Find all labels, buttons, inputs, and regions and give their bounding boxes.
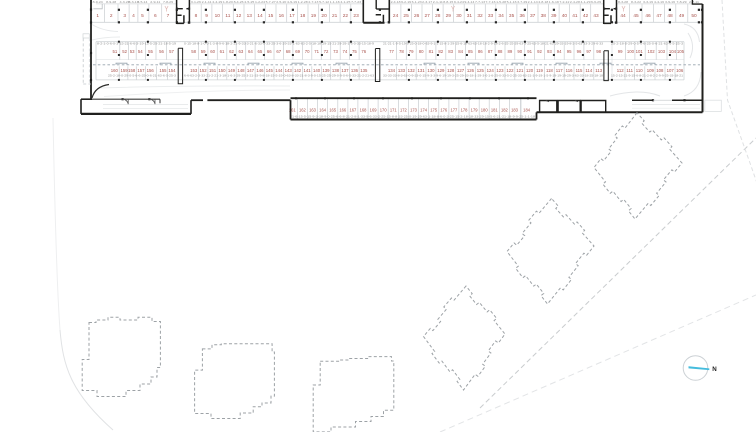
svg-text:84: 84 bbox=[458, 49, 463, 54]
svg-text:41: 41 bbox=[572, 13, 578, 19]
svg-text:46: 46 bbox=[645, 13, 651, 19]
svg-text:2: 2 bbox=[110, 13, 113, 19]
svg-text:147: 147 bbox=[247, 68, 255, 73]
svg-text:64: 64 bbox=[248, 49, 253, 54]
svg-text:165: 165 bbox=[329, 108, 337, 113]
svg-text:29: 29 bbox=[446, 13, 452, 19]
svg-text:2-7-11: 2-7-11 bbox=[689, 1, 700, 4]
svg-text:184: 184 bbox=[523, 108, 531, 113]
svg-text:125: 125 bbox=[477, 68, 485, 73]
svg-text:6-6-29: 6-6-29 bbox=[591, 1, 602, 4]
svg-text:86: 86 bbox=[478, 49, 483, 54]
svg-text:166: 166 bbox=[339, 108, 347, 113]
svg-text:131: 131 bbox=[418, 68, 426, 73]
svg-text:137: 137 bbox=[341, 68, 349, 73]
svg-text:13: 13 bbox=[247, 13, 253, 19]
svg-text:1-5-28: 1-5-28 bbox=[496, 1, 507, 4]
svg-text:58: 58 bbox=[191, 49, 196, 54]
svg-text:21-21-1-9-5-19-9-25-0-18-0-63-: 21-21-1-9-5-19-9-25-0-18-0-63-9-1-1-15-8… bbox=[383, 43, 604, 46]
svg-text:107: 107 bbox=[667, 68, 675, 73]
svg-text:182: 182 bbox=[501, 108, 509, 113]
svg-text:25: 25 bbox=[403, 13, 409, 19]
svg-text:174: 174 bbox=[420, 108, 428, 113]
svg-text:0-15-18-8-1-0-0-1-3-8-9-6-18-2: 0-15-18-8-1-0-0-1-3-8-9-6-18-2-21-9-33-3… bbox=[184, 43, 375, 46]
svg-text:178: 178 bbox=[461, 108, 469, 113]
svg-text:83: 83 bbox=[448, 49, 453, 54]
svg-text:135: 135 bbox=[360, 68, 368, 73]
svg-text:73: 73 bbox=[333, 49, 338, 54]
svg-text:106: 106 bbox=[676, 68, 684, 73]
svg-text:19: 19 bbox=[311, 13, 317, 19]
svg-text:2-9-11: 2-9-11 bbox=[150, 1, 161, 4]
svg-text:158: 158 bbox=[128, 68, 136, 73]
svg-text:82: 82 bbox=[438, 49, 443, 54]
svg-text:79: 79 bbox=[409, 49, 414, 54]
svg-text:2-4-28: 2-4-28 bbox=[570, 1, 581, 4]
svg-text:78: 78 bbox=[399, 49, 404, 54]
svg-text:20: 20 bbox=[321, 13, 327, 19]
svg-text:48: 48 bbox=[667, 13, 673, 19]
svg-text:35: 35 bbox=[509, 13, 515, 19]
svg-text:2-1-14: 2-1-14 bbox=[528, 1, 539, 4]
svg-text:7: 7 bbox=[167, 13, 170, 19]
svg-text:6-2-19: 6-2-19 bbox=[401, 1, 412, 4]
svg-text:8-3-28: 8-3-28 bbox=[618, 1, 629, 4]
svg-text:75: 75 bbox=[352, 49, 357, 54]
svg-text:25-2-18-0-29-0-5-6-6-25-0-6-21: 25-2-18-0-29-0-5-6-6-25-0-6-21-63-6-5-25… bbox=[611, 43, 684, 46]
svg-text:7-8-29: 7-8-29 bbox=[163, 1, 174, 4]
svg-text:90: 90 bbox=[517, 49, 522, 54]
svg-text:68: 68 bbox=[286, 49, 291, 54]
svg-text:101: 101 bbox=[636, 49, 644, 54]
svg-text:149: 149 bbox=[228, 68, 236, 73]
svg-text:2-3-17: 2-3-17 bbox=[422, 1, 433, 4]
svg-text:91: 91 bbox=[527, 49, 532, 54]
svg-text:171: 171 bbox=[390, 108, 398, 113]
svg-text:4-1-25: 4-1-25 bbox=[340, 1, 351, 4]
svg-text:169: 169 bbox=[370, 108, 378, 113]
svg-text:6-1-23: 6-1-23 bbox=[412, 1, 423, 4]
svg-text:143: 143 bbox=[285, 68, 293, 73]
svg-text:164: 164 bbox=[319, 108, 327, 113]
svg-text:33-33-33-8-3-63-0-9-33-0-15-9-: 33-33-33-8-3-63-0-9-33-0-15-9-3-3-9-6-19… bbox=[383, 74, 604, 77]
svg-text:8-9-28: 8-9-28 bbox=[106, 1, 117, 4]
svg-text:157: 157 bbox=[137, 68, 145, 73]
svg-text:113: 113 bbox=[595, 68, 602, 73]
svg-text:121: 121 bbox=[516, 68, 524, 73]
svg-text:92: 92 bbox=[537, 49, 542, 54]
svg-text:69: 69 bbox=[295, 49, 300, 54]
svg-text:160: 160 bbox=[111, 68, 119, 73]
svg-text:80: 80 bbox=[419, 49, 424, 54]
svg-text:167: 167 bbox=[349, 108, 357, 113]
svg-text:172: 172 bbox=[400, 108, 408, 113]
svg-text:129: 129 bbox=[437, 68, 445, 73]
svg-text:88: 88 bbox=[498, 49, 503, 54]
svg-text:99: 99 bbox=[618, 49, 623, 54]
svg-text:175: 175 bbox=[430, 108, 438, 113]
svg-text:183: 183 bbox=[511, 108, 519, 113]
svg-text:53: 53 bbox=[130, 49, 135, 54]
svg-text:104: 104 bbox=[669, 49, 677, 54]
svg-text:111: 111 bbox=[626, 68, 633, 73]
svg-text:28: 28 bbox=[435, 13, 441, 19]
svg-text:8-2-1-0-6-0-3-15-21-6-6-3-19-1: 8-2-1-0-6-0-3-15-21-6-6-3-19-15-5-25-21-… bbox=[97, 43, 177, 46]
svg-text:52: 52 bbox=[122, 49, 127, 54]
svg-text:114: 114 bbox=[585, 68, 592, 73]
svg-text:49: 49 bbox=[679, 13, 685, 19]
svg-text:15: 15 bbox=[268, 13, 274, 19]
svg-text:105: 105 bbox=[677, 49, 685, 54]
svg-text:112: 112 bbox=[617, 68, 624, 73]
svg-text:9-4-24: 9-4-24 bbox=[454, 1, 465, 4]
svg-text:115: 115 bbox=[576, 68, 583, 73]
svg-text:9: 9 bbox=[205, 13, 208, 19]
svg-text:50: 50 bbox=[691, 13, 697, 19]
svg-text:51: 51 bbox=[113, 49, 118, 54]
svg-text:153: 153 bbox=[190, 68, 198, 73]
svg-text:162: 162 bbox=[299, 108, 307, 113]
svg-text:142: 142 bbox=[294, 68, 302, 73]
svg-text:65: 65 bbox=[258, 49, 263, 54]
svg-text:42: 42 bbox=[583, 13, 589, 19]
svg-text:67: 67 bbox=[276, 49, 281, 54]
svg-text:4-5-25: 4-5-25 bbox=[244, 1, 255, 4]
svg-text:120: 120 bbox=[526, 68, 534, 73]
svg-text:95: 95 bbox=[567, 49, 572, 54]
svg-text:155: 155 bbox=[159, 68, 167, 73]
svg-text:1-2-28: 1-2-28 bbox=[298, 1, 309, 4]
svg-text:23: 23 bbox=[353, 13, 359, 19]
svg-text:8-8-15: 8-8-15 bbox=[443, 1, 454, 4]
svg-text:3-3-19: 3-3-19 bbox=[643, 1, 654, 4]
svg-text:25-2-18-0-29-0-5-6-6-25-0-6-21: 25-2-18-0-29-0-5-6-6-25-0-6-21-63-6-5-25… bbox=[108, 74, 177, 77]
svg-text:148: 148 bbox=[237, 68, 245, 73]
svg-text:163: 163 bbox=[309, 108, 317, 113]
svg-text:170: 170 bbox=[380, 108, 388, 113]
svg-text:24: 24 bbox=[393, 13, 399, 19]
svg-text:81: 81 bbox=[429, 49, 434, 54]
svg-text:32: 32 bbox=[477, 13, 483, 19]
svg-text:18: 18 bbox=[300, 13, 306, 19]
svg-text:14: 14 bbox=[257, 13, 263, 19]
svg-text:62: 62 bbox=[229, 49, 234, 54]
svg-text:130: 130 bbox=[427, 68, 435, 73]
svg-text:126: 126 bbox=[467, 68, 475, 73]
svg-text:4: 4 bbox=[132, 13, 135, 19]
svg-text:66: 66 bbox=[267, 49, 272, 54]
svg-text:63: 63 bbox=[239, 49, 244, 54]
svg-text:1-8-20: 1-8-20 bbox=[223, 1, 234, 4]
svg-text:179: 179 bbox=[471, 108, 479, 113]
svg-text:4-4-16: 4-4-16 bbox=[654, 1, 665, 4]
svg-text:124: 124 bbox=[487, 68, 495, 73]
svg-text:144: 144 bbox=[275, 68, 283, 73]
svg-text:136: 136 bbox=[351, 68, 359, 73]
svg-text:85: 85 bbox=[468, 49, 473, 54]
svg-text:76: 76 bbox=[361, 49, 366, 54]
svg-text:7-7-13: 7-7-13 bbox=[475, 1, 486, 4]
svg-text:4-8-18: 4-8-18 bbox=[538, 1, 549, 4]
svg-text:87: 87 bbox=[488, 49, 493, 54]
svg-text:1: 1 bbox=[96, 13, 99, 19]
svg-text:37: 37 bbox=[530, 13, 536, 19]
svg-text:21-6-15-5-15-9-3-18-9-0-25-6-6: 21-6-15-5-15-9-3-18-9-0-25-6-6-8-21-2-8-… bbox=[290, 115, 536, 118]
svg-text:4-1-29: 4-1-29 bbox=[581, 1, 592, 4]
svg-text:3-1-26: 3-1-26 bbox=[191, 1, 202, 4]
svg-text:154: 154 bbox=[168, 68, 176, 73]
svg-text:150: 150 bbox=[218, 68, 226, 73]
svg-text:72: 72 bbox=[324, 49, 329, 54]
svg-text:44: 44 bbox=[620, 13, 626, 19]
svg-text:128: 128 bbox=[447, 68, 455, 73]
svg-text:8-5-14: 8-5-14 bbox=[137, 1, 148, 4]
svg-text:1-1-16: 1-1-16 bbox=[330, 1, 341, 4]
svg-text:98: 98 bbox=[596, 49, 601, 54]
svg-text:118: 118 bbox=[546, 68, 553, 73]
svg-text:133: 133 bbox=[398, 68, 406, 73]
svg-text:16: 16 bbox=[279, 13, 285, 19]
svg-text:145: 145 bbox=[266, 68, 274, 73]
svg-text:4-4-29: 4-4-29 bbox=[212, 1, 223, 4]
svg-text:7-7-23: 7-7-23 bbox=[351, 1, 362, 4]
svg-text:156: 156 bbox=[147, 68, 155, 73]
svg-text:108: 108 bbox=[656, 68, 664, 73]
svg-text:100: 100 bbox=[627, 49, 635, 54]
svg-text:11: 11 bbox=[225, 13, 230, 19]
svg-text:140: 140 bbox=[313, 68, 321, 73]
svg-text:2-7-13: 2-7-13 bbox=[308, 1, 319, 4]
svg-text:17: 17 bbox=[289, 13, 295, 19]
svg-text:89: 89 bbox=[508, 49, 513, 54]
svg-text:N: N bbox=[712, 366, 717, 373]
svg-text:2-1-11: 2-1-11 bbox=[433, 1, 444, 4]
svg-text:102: 102 bbox=[648, 49, 656, 54]
svg-text:55: 55 bbox=[148, 49, 153, 54]
svg-text:109: 109 bbox=[647, 68, 655, 73]
svg-text:27: 27 bbox=[425, 13, 431, 19]
svg-text:33: 33 bbox=[488, 13, 494, 19]
svg-text:45: 45 bbox=[633, 13, 639, 19]
svg-text:122: 122 bbox=[506, 68, 514, 73]
svg-text:61: 61 bbox=[220, 49, 225, 54]
svg-text:123: 123 bbox=[496, 68, 504, 73]
svg-text:59: 59 bbox=[201, 49, 206, 54]
svg-text:3-7-29: 3-7-29 bbox=[517, 1, 528, 4]
svg-text:177: 177 bbox=[450, 108, 458, 113]
svg-text:7-8-29: 7-8-29 bbox=[677, 1, 688, 4]
svg-text:5-1-16: 5-1-16 bbox=[507, 1, 518, 4]
svg-text:40: 40 bbox=[562, 13, 568, 19]
svg-text:138: 138 bbox=[332, 68, 340, 73]
svg-text:181: 181 bbox=[491, 108, 499, 113]
svg-text:4-9-19: 4-9-19 bbox=[287, 1, 298, 4]
svg-text:2-4-18: 2-4-18 bbox=[391, 1, 402, 4]
svg-text:43: 43 bbox=[593, 13, 599, 19]
svg-text:176: 176 bbox=[440, 108, 448, 113]
svg-text:71: 71 bbox=[314, 49, 319, 54]
svg-text:180: 180 bbox=[481, 108, 489, 113]
svg-text:117: 117 bbox=[556, 68, 563, 73]
svg-text:139: 139 bbox=[322, 68, 330, 73]
svg-text:26: 26 bbox=[414, 13, 420, 19]
svg-text:8-3-22: 8-3-22 bbox=[631, 1, 642, 4]
svg-text:36: 36 bbox=[520, 13, 526, 19]
svg-text:12: 12 bbox=[236, 13, 242, 19]
svg-text:127: 127 bbox=[457, 68, 465, 73]
svg-text:5: 5 bbox=[141, 13, 144, 19]
svg-text:77: 77 bbox=[389, 49, 394, 54]
svg-text:5-7-12: 5-7-12 bbox=[319, 1, 330, 4]
svg-text:38: 38 bbox=[541, 13, 547, 19]
svg-text:3: 3 bbox=[123, 13, 126, 19]
svg-text:168: 168 bbox=[360, 108, 368, 113]
svg-text:96: 96 bbox=[577, 49, 582, 54]
svg-text:70: 70 bbox=[305, 49, 310, 54]
svg-text:10: 10 bbox=[215, 13, 221, 19]
svg-text:152: 152 bbox=[200, 68, 208, 73]
svg-text:97: 97 bbox=[586, 49, 591, 54]
svg-text:103: 103 bbox=[658, 49, 666, 54]
svg-text:7-2-12: 7-2-12 bbox=[559, 1, 570, 4]
svg-text:119: 119 bbox=[536, 68, 543, 73]
svg-text:8-4-26: 8-4-26 bbox=[234, 1, 245, 4]
svg-text:31: 31 bbox=[467, 13, 473, 19]
svg-text:21: 21 bbox=[332, 13, 338, 19]
svg-text:8: 8 bbox=[195, 13, 198, 19]
svg-text:146: 146 bbox=[256, 68, 264, 73]
svg-text:3-9-16: 3-9-16 bbox=[665, 1, 676, 4]
svg-text:141: 141 bbox=[304, 68, 312, 73]
svg-text:173: 173 bbox=[410, 108, 418, 113]
svg-text:1-6-19: 1-6-19 bbox=[549, 1, 560, 4]
svg-text:151: 151 bbox=[209, 68, 217, 73]
svg-text:134: 134 bbox=[388, 68, 396, 73]
svg-text:47: 47 bbox=[656, 13, 662, 19]
svg-text:132: 132 bbox=[408, 68, 416, 73]
svg-text:9-4-14: 9-4-14 bbox=[464, 1, 475, 4]
svg-text:74: 74 bbox=[343, 49, 348, 54]
svg-text:54: 54 bbox=[138, 49, 143, 54]
svg-text:7-7-16: 7-7-16 bbox=[486, 1, 497, 4]
svg-text:6: 6 bbox=[154, 13, 157, 19]
svg-text:60: 60 bbox=[210, 49, 215, 54]
svg-text:93: 93 bbox=[547, 49, 552, 54]
svg-text:56: 56 bbox=[159, 49, 164, 54]
svg-text:1-2-24: 1-2-24 bbox=[255, 1, 266, 4]
svg-text:22: 22 bbox=[343, 13, 349, 19]
svg-text:110: 110 bbox=[636, 68, 643, 73]
svg-text:2-5-20: 2-5-20 bbox=[276, 1, 287, 4]
svg-text:30: 30 bbox=[456, 13, 462, 19]
svg-text:2-1-11: 2-1-11 bbox=[202, 1, 213, 4]
svg-text:8-9-24: 8-9-24 bbox=[93, 1, 104, 4]
svg-text:34: 34 bbox=[498, 13, 504, 19]
svg-text:94: 94 bbox=[557, 49, 562, 54]
svg-text:116: 116 bbox=[566, 68, 573, 73]
svg-text:39: 39 bbox=[551, 13, 557, 19]
svg-text:6-6-63-2-3-33-21-2-21-3-18-1-6: 6-6-63-2-3-33-21-2-21-3-18-1-6-3-29-25-3… bbox=[184, 74, 375, 77]
svg-text:5-7-27: 5-7-27 bbox=[266, 1, 277, 4]
svg-text:15-2-15-21-9-15-6-8-21-2-8-2-2: 15-2-15-21-9-15-6-8-21-2-8-2-2-9-9-25-33… bbox=[611, 74, 684, 77]
svg-text:57: 57 bbox=[169, 49, 174, 54]
